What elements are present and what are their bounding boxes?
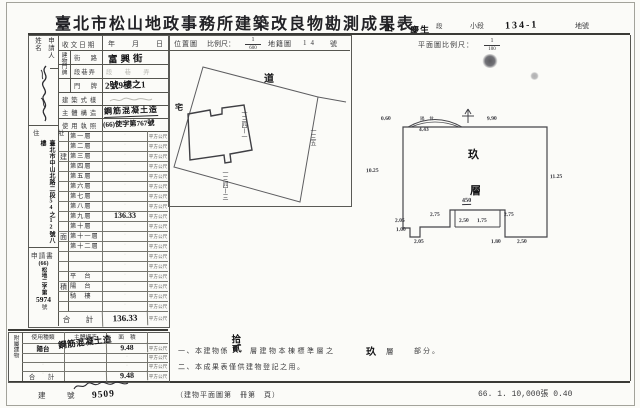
license-label: 使用執照 <box>62 121 99 130</box>
total-label: 合 計 <box>58 311 102 326</box>
floor-label: 第九層 <box>58 211 102 221</box>
cadastre-map-label: 地籍圖 <box>268 39 292 49</box>
dim-shaft-inner-1: 2.50 <box>459 218 469 224</box>
floor-area-value <box>102 201 148 211</box>
area-unit: 平方公尺 <box>148 371 168 381</box>
dim-top-left: 0.60 <box>381 116 391 122</box>
annex-area <box>106 353 148 362</box>
parcel-number-value: 134-1 <box>505 19 539 31</box>
structure-label: 主體構造 <box>62 108 99 117</box>
application-label: 申請書 <box>31 250 54 260</box>
parcel-bottom-label: 一三四ー三 <box>220 170 229 204</box>
building-style-label: 建築式樣 <box>62 95 99 104</box>
area-unit: 平方公尺 <box>148 131 168 141</box>
annex-total-label: 合 計 <box>22 371 64 381</box>
application-no-suffix: 號 <box>41 304 47 310</box>
floor-label <box>58 261 102 271</box>
cadastre-map-no: 14 <box>303 39 318 47</box>
balcony-label: 陽 台 <box>420 116 434 122</box>
dim-right-side: 11.25 <box>550 174 562 180</box>
floor-area-value <box>102 291 148 301</box>
number-label: 門 牌 <box>74 81 99 90</box>
area-unit: 平方公尺 <box>148 261 168 271</box>
floor-label: 第十一層 <box>58 231 102 241</box>
application-number: (66)松地二字第5974號 <box>36 261 51 323</box>
floor-area-value <box>102 181 148 191</box>
structure-value: 鋼筋混凝土造 <box>104 104 158 118</box>
annex-type <box>22 362 64 371</box>
application-no-prefix: 松地二字第 <box>41 267 47 295</box>
floor-label: 騎 樓 <box>58 291 102 301</box>
floor-plan-room-label-2: 層 <box>470 182 481 198</box>
road-label: 道 <box>264 70 274 85</box>
floor-label <box>58 251 102 261</box>
floor-label: 第七層 <box>58 191 102 201</box>
area-unit: 平方公尺 <box>148 161 168 171</box>
note-1-level-handwriting: 玖 <box>366 343 377 358</box>
floor-area-value <box>102 131 148 141</box>
floor-area-value <box>102 191 148 201</box>
note-1-suffix: 部分。 <box>414 346 441 356</box>
application-no-digits: 5974 <box>36 295 51 304</box>
district-label: 區 <box>398 18 404 27</box>
subsection-label: 小段 <box>470 21 484 31</box>
floor-label: 第三層 <box>58 151 102 161</box>
area-unit: 平方公尺 <box>148 251 168 261</box>
area-unit: 平方公尺 <box>148 343 168 353</box>
floor-area-value <box>102 141 148 151</box>
building-no-handwriting: 9509 <box>92 389 116 401</box>
floor-area-value <box>102 171 148 181</box>
floor-area-value: 136.33 <box>102 211 148 221</box>
floor-label: 第八層 <box>58 201 102 211</box>
license-value: (66)使字第767號 <box>103 118 155 130</box>
area-unit: 平方公尺 <box>148 141 168 151</box>
area-unit: 平方公尺 <box>148 311 168 326</box>
floor-plan-room-label-1: 玖 <box>468 146 479 162</box>
right-box-edge <box>630 35 631 381</box>
floor-label: 第一層 <box>58 131 102 141</box>
floor-area-value <box>102 251 148 261</box>
floor-label: 平 台 <box>58 271 102 281</box>
scale-numerator: 1 <box>491 38 494 44</box>
floor-label: 第十二層 <box>58 241 102 251</box>
section-label: 段 <box>436 20 443 30</box>
note-1-mid: 層建物本棟標準層之 <box>250 346 336 356</box>
annex-header-area: 面 積 <box>106 332 148 343</box>
door-group-vline <box>70 50 71 92</box>
dim-shaft-inner-2: 1.75 <box>477 218 487 224</box>
floor-label: 第十層 <box>58 221 102 231</box>
site-plan-drawing <box>168 50 350 205</box>
dim-step-down: 1.00 <box>396 227 406 233</box>
area-unit: 平方公尺 <box>148 271 168 281</box>
applicant-name-handwriting <box>37 64 53 122</box>
floor-label: 第二層 <box>58 141 102 151</box>
dim-shaft-right: 2.75 <box>504 212 514 218</box>
lane-label: 段巷弄 <box>74 67 96 76</box>
street-value: 富興街 <box>108 50 146 65</box>
dim-bottom-mid: 1.80 <box>491 239 501 245</box>
area-unit: 平方公尺 <box>148 362 168 371</box>
address-value: 臺北市中山北路二段54之12號八樓 <box>38 140 56 244</box>
site-plan-scale-label: 比例尺： <box>207 39 235 49</box>
annex-type <box>22 353 64 362</box>
floor-area-value <box>102 231 148 241</box>
floor-label: 第四層 <box>58 161 102 171</box>
area-unit: 平方公尺 <box>148 353 168 362</box>
note-1-prefix: 一、本建物係 <box>178 346 229 356</box>
print-info: 66. 1. 10,000張 0.40 <box>478 388 572 399</box>
receipt-date-label: 收文日期 <box>62 39 96 49</box>
hline-r4 <box>58 92 168 93</box>
dim-top-right: 9.90 <box>487 116 497 122</box>
street-label: 街 路 <box>74 53 99 62</box>
total-area-value: 136.33 <box>102 310 148 327</box>
page-title: 臺北市松山地政事務所建築改良物勘測成果表 <box>55 10 415 34</box>
dim-left-side: 10.25 <box>366 168 379 174</box>
annex-top-rule <box>8 329 168 331</box>
floor-plan-drawing <box>352 50 630 300</box>
cola-sep1 <box>28 125 58 126</box>
total-row: 合 計 136.33 平方公尺 <box>58 311 168 326</box>
receipt-date-value: 年 月 日 <box>108 39 168 49</box>
dim-bottom-right: 2.50 <box>517 239 527 245</box>
floor-area-value <box>102 221 148 231</box>
floor-area-value <box>102 241 148 251</box>
applicant-name-label: 申請人姓名 <box>31 37 57 63</box>
building-style-handwriting <box>108 96 154 104</box>
area-unit: 平方公尺 <box>148 201 168 211</box>
annex-side-label: 附屬建物 <box>11 335 20 379</box>
parcel-right-label: 一三五 <box>308 128 317 160</box>
dim-balcony-width: 4.43 <box>419 127 429 133</box>
note-1-level-label: 層 <box>386 346 394 357</box>
number-value: 2號9樓之1 <box>105 77 146 91</box>
floor-plan-scale-label: 平面圖比例尺： <box>418 40 474 50</box>
scanned-survey-form: 臺北市松山地政事務所建築改良物勘測成果表 山 區 慶生 段 小段 134-1 地… <box>0 0 640 408</box>
area-unit: 平方公尺 <box>148 191 168 201</box>
dim-bottom-left: 2.05 <box>414 239 424 245</box>
floor-area-value <box>102 261 148 271</box>
area-unit: 平方公尺 <box>148 231 168 241</box>
cola-sep2 <box>28 247 58 248</box>
plan-reference: （建物平面圖第 冊第 頁） <box>176 390 280 400</box>
dim-shaft-top: 450 <box>462 197 472 205</box>
parcel-center-label: 一三四ー一 <box>239 110 248 154</box>
door-plate-group-label: 建物門牌 <box>59 52 68 90</box>
dim-step-left: 2.05 <box>395 218 405 224</box>
area-unit: 平方公尺 <box>148 301 168 311</box>
note-2: 二、本成果表僅供建物登記之用。 <box>178 362 306 372</box>
area-unit: 平方公尺 <box>148 181 168 191</box>
scale-numerator: 1 <box>252 37 255 43</box>
lane-value: 段 巷 弄 <box>106 67 152 76</box>
area-unit: 平方公尺 <box>148 211 168 221</box>
area-unit: 平方公尺 <box>148 241 168 251</box>
site-plan-label: 位置圖 <box>174 39 198 49</box>
dim-shaft-left: 2.75 <box>430 212 440 218</box>
floor-area-value <box>102 271 148 281</box>
floor-label: 第六層 <box>58 181 102 191</box>
floor-label: 第五層 <box>58 171 102 181</box>
area-unit: 平方公尺 <box>148 151 168 161</box>
floor-label <box>58 301 102 311</box>
site-plan-scale-fraction: 1600 <box>245 37 261 51</box>
floor-area-value <box>102 151 148 161</box>
floor-area-value <box>102 281 148 291</box>
parcel-number-label: 地號 <box>575 21 589 31</box>
cadastre-map-no-suffix: 號 <box>330 39 337 49</box>
area-unit: 平方公尺 <box>148 221 168 231</box>
area-unit: 平方公尺 <box>148 171 168 181</box>
floor-area-value <box>102 161 148 171</box>
floor-label: 陽 台 <box>58 281 102 291</box>
area-unit: 平方公尺 <box>148 291 168 301</box>
area-unit: 平方公尺 <box>148 281 168 291</box>
site-left-label: 宅 <box>175 102 183 113</box>
